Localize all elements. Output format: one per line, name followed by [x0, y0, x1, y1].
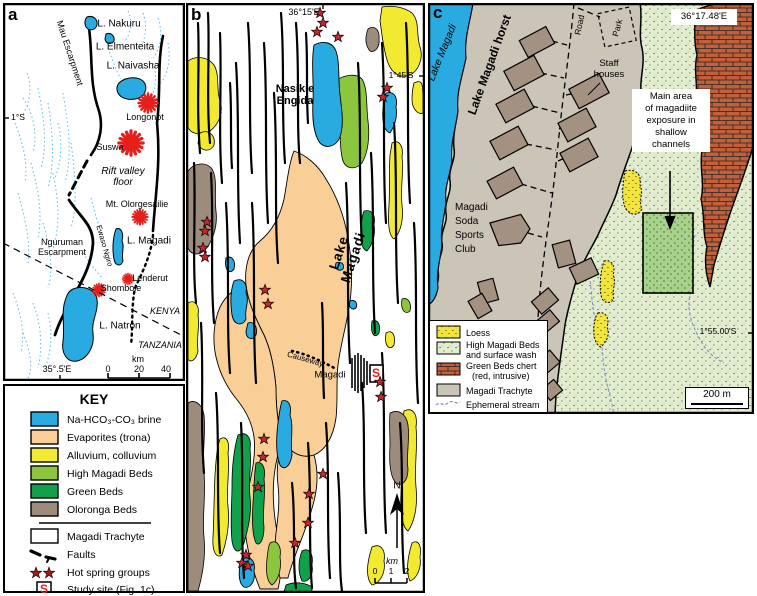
- key-swatch-high-magadi: [31, 466, 58, 480]
- label-lake-natron: L. Natron: [99, 320, 140, 331]
- key-label-trachyte: Magadi Trachyte: [67, 531, 145, 543]
- annotation-main-area: Main area of magadiite exposure in shall…: [632, 89, 710, 152]
- key-swatch-trona: [31, 430, 58, 444]
- magadiite-study-rectangle: [643, 213, 693, 293]
- label-lake-magadi-a: L. Magadi: [127, 235, 171, 246]
- label-rift-valley-floor: Rift valley floor: [93, 166, 153, 188]
- legend-label-trachyte: Magadi Trachyte: [466, 386, 533, 396]
- panel-c-legend: Loess High Magadi Beds and surface wash …: [429, 320, 548, 413]
- panel-b-letter: b: [191, 5, 201, 24]
- label-shombole: Shombole: [101, 283, 142, 293]
- key-swatch-green-beds: [31, 484, 58, 498]
- panel-a-regional-map: a L. Nakuru L. Elmenteita L. Naivasha Lo…: [3, 3, 185, 381]
- label-kenya: KENYA: [150, 306, 180, 316]
- label-nasikie-engida: Nasikie Engida: [266, 83, 324, 108]
- key-label-hot-springs: Hot spring groups: [67, 567, 150, 579]
- key-label-study-site: Study site (Fig. 1c): [67, 584, 155, 596]
- label-magadi-town: Magadi: [314, 371, 345, 382]
- legend-hmb-line2: and surface wash: [466, 350, 540, 360]
- panel-c-legend-swatches: [430, 321, 464, 413]
- legend-swatch-trachyte: [437, 384, 460, 396]
- annotation-line3: exposure in: [632, 115, 710, 127]
- label-lon-36-17-48: 36°17.48'E: [671, 9, 737, 25]
- annotation-line4: shallow: [632, 127, 710, 139]
- key-swatch-brine: [31, 412, 58, 426]
- figure-lake-magadi-maps: a L. Nakuru L. Elmenteita L. Naivasha Lo…: [0, 0, 757, 596]
- scale-0-a: 0: [105, 364, 110, 374]
- label-longonot: Longonot: [126, 112, 164, 122]
- annotation-line1: Main area: [632, 91, 710, 103]
- nguruman-line2: Escarpment: [31, 247, 93, 257]
- label-lenderut: Lenderut: [132, 273, 168, 283]
- key-swatch-alluvium: [31, 448, 58, 462]
- key-label-high-magadi: High Magadi Beds: [67, 468, 153, 480]
- panel-c-letter: c: [433, 3, 442, 22]
- club-line4: Club: [455, 243, 488, 257]
- legend-swatch-chert: [437, 363, 460, 375]
- label-lake-elmenteita: L. Elmenteita: [96, 41, 154, 52]
- legend-swatch-high-magadi: [437, 342, 460, 354]
- label-magadi-soda-sports-club: Magadi Soda Sports Club: [455, 201, 488, 257]
- nguruman-line1: Nguruman: [31, 237, 93, 247]
- nasikie-line2: Engida: [266, 95, 324, 107]
- club-line1: Magadi: [455, 201, 488, 215]
- legend-label-loess: Loess: [466, 328, 490, 338]
- study-site-letter-b: S: [372, 367, 380, 380]
- label-north: N: [393, 480, 400, 491]
- scale-box-200m: 200 m: [685, 387, 749, 409]
- nasikie-line1: Nasikie: [266, 83, 324, 95]
- key-swatch-trachyte: [31, 529, 58, 543]
- label-lake-naivasha: L. Naivasha: [107, 60, 160, 71]
- legend-swatch-loess: [437, 326, 460, 338]
- key-swatch-oloronga: [31, 502, 58, 516]
- label-lat-1-55: 1°55.00'S: [700, 327, 737, 337]
- panel-b-geological-map: b 36°15'E 1°45'S Nasikie Engida Lake Mag…: [186, 3, 425, 593]
- label-tanzania: TANZANIA: [138, 340, 182, 350]
- key-hot-spring-stars: [30, 567, 55, 578]
- label-latitude-1s: 1°S: [11, 113, 25, 123]
- legend-label-high-magadi: High Magadi Beds and surface wash: [466, 340, 540, 361]
- key-label-green-beds: Green Beds: [67, 486, 123, 498]
- legend-label-chert: Green Beds chert (red, intrusive): [466, 361, 537, 382]
- scale-200m-label: 200 m: [686, 388, 748, 402]
- legend-label-stream: Ephemeral stream: [466, 400, 540, 410]
- scale-unit-a: km: [132, 354, 144, 364]
- key-title: KEY: [80, 392, 109, 408]
- key-label-alluvium: Alluvium, colluvium: [67, 450, 156, 462]
- annotation-line2: of magadiite: [632, 103, 710, 115]
- club-line3: Sports: [455, 229, 488, 243]
- scale-0-b: 0: [373, 567, 378, 577]
- legend-chert-line1: Green Beds chert: [466, 361, 537, 371]
- panel-a-letter: a: [8, 5, 17, 24]
- key-label-brine: Na-HCO₃-CO₃ brine: [67, 414, 161, 426]
- label-lon-36-15: 36°15'E: [288, 7, 319, 17]
- key-label-oloronga: Oloronga Beds: [67, 504, 137, 516]
- legend-stream-symbol: [436, 402, 460, 405]
- label-nguruman-escarpment: Nguruman Escarpment: [31, 237, 93, 257]
- scale-20-a: 20: [134, 364, 144, 374]
- panel-c-site-map: c Lake Magadi Lake Magadi horst Road Par…: [428, 3, 754, 414]
- legend-hmb-line1: High Magadi Beds: [466, 340, 540, 350]
- label-staff-houses: Staff houses: [580, 59, 638, 80]
- map-key: KEY Na-HCO₃-CO₃ brine Evaporites (trona)…: [3, 384, 185, 593]
- scale-200m-bar: [691, 403, 743, 405]
- staff-line2: houses: [580, 70, 638, 81]
- key-label-faults: Faults: [67, 549, 96, 561]
- key-study-site-letter: S: [40, 583, 48, 596]
- club-line2: Soda: [455, 215, 488, 229]
- rift-valley-line1: Rift valley: [93, 166, 153, 177]
- label-longitude-35e: 35°.5'E: [43, 364, 72, 374]
- scale-40-a: 40: [161, 364, 171, 374]
- annotation-line5: channels: [632, 139, 710, 151]
- scale-2-b: 2: [405, 567, 410, 577]
- key-fault-symbol: [31, 551, 55, 562]
- scale-unit-b: km: [386, 556, 398, 566]
- legend-chert-line2: (red, intrusive): [466, 371, 537, 381]
- label-mt-olorgesailie: Mt. Olorgesailie: [106, 199, 169, 209]
- scale-1-b: 1: [389, 567, 394, 577]
- label-suswa: Suswa: [96, 142, 123, 152]
- key-label-trona: Evaporites (trona): [67, 432, 150, 444]
- label-lat-1-45: 1°45'S: [389, 71, 414, 81]
- rift-valley-line2: floor: [93, 177, 153, 188]
- label-lake-nakuru: L. Nakuru: [97, 18, 140, 29]
